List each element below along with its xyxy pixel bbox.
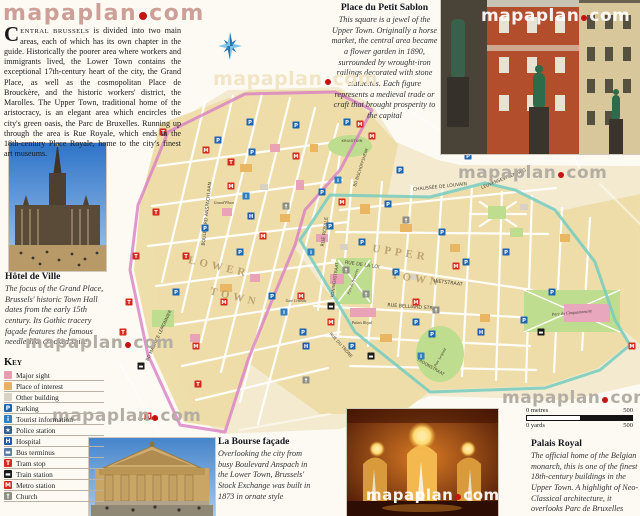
map-marker-glyph: T	[184, 254, 188, 260]
map-marker-glyph: ▬	[329, 304, 334, 310]
watermark: mapaplancom	[481, 6, 630, 26]
place-label: Grand'Place	[214, 200, 235, 205]
legend-label: Tram stop	[16, 459, 46, 468]
place-label: Gare Centrale	[286, 299, 307, 303]
map-marker-glyph: M	[298, 294, 303, 300]
compass-rose-icon	[218, 32, 242, 60]
legend-label: Bus terminus	[16, 448, 55, 457]
map-marker-glyph: ▬	[369, 354, 374, 360]
legend-label: Tourist information	[16, 415, 73, 424]
map-marker-glyph: P	[464, 260, 468, 266]
scale-metres-max: 500	[623, 407, 633, 414]
map-marker-glyph: P	[386, 202, 390, 208]
legend-icon: T	[4, 459, 12, 467]
legend-icon	[4, 393, 12, 401]
la-bourse-body: Overlooking the city from busy Boulevard…	[218, 449, 314, 502]
map-key: Key Major sightPlace of interestOther bu…	[4, 357, 104, 502]
key-item: HHospital	[4, 436, 104, 447]
logo-tld: com	[149, 1, 205, 26]
map-marker-glyph: P	[294, 123, 298, 129]
map-marker-glyph: i	[245, 194, 247, 200]
map-marker-glyph: P	[414, 320, 418, 326]
map-marker-glyph: T	[134, 254, 138, 260]
map-marker-glyph: M	[193, 344, 198, 350]
key-list: Major sightPlace of interestOther buildi…	[4, 370, 104, 502]
map-marker-glyph: P	[238, 250, 242, 256]
legend-label: Other building	[16, 393, 59, 402]
map-marker-glyph: i	[283, 310, 285, 316]
watermark: mapaplancom	[502, 388, 640, 408]
legend-label: Police station	[16, 426, 56, 435]
map-marker-glyph: P	[320, 190, 324, 196]
map-marker-glyph: P	[394, 270, 398, 276]
map-marker-glyph: i	[420, 354, 422, 360]
legend-icon: P	[4, 404, 12, 412]
legend-icon: ★	[4, 426, 12, 434]
legend-icon: i	[4, 415, 12, 423]
legend-icon	[4, 371, 12, 379]
map-marker-glyph: P	[522, 318, 526, 324]
watermark: mapaplancom	[458, 163, 607, 183]
map-marker-glyph: M	[357, 122, 362, 128]
map-marker-glyph: H	[304, 344, 308, 350]
map-marker-glyph: M	[293, 154, 298, 160]
legend-label: Train station	[16, 470, 53, 479]
map-marker-glyph: P	[248, 120, 252, 126]
map-marker-glyph: P	[504, 250, 508, 256]
photo-hotel-de-ville	[8, 142, 107, 272]
hotel-de-ville-title: Hôtel de Ville	[5, 271, 107, 282]
site-logo: mapaplancom	[3, 1, 205, 26]
map-marker-glyph: †	[405, 218, 408, 224]
map-marker-glyph: †	[305, 378, 308, 384]
street-label: KRUIDTUIN	[341, 138, 362, 143]
map-marker-glyph: T	[196, 382, 200, 388]
map-marker-glyph: M	[260, 234, 265, 240]
scale-bar	[526, 415, 633, 421]
legend-label: Major sight	[16, 371, 50, 380]
map-marker-glyph: P	[328, 224, 332, 230]
watermark: mapaplancom	[25, 333, 174, 353]
map-scale: 0 metres 500 0 yards 500	[526, 407, 633, 429]
map-marker-glyph: P	[301, 330, 305, 336]
legend-label: Hospital	[16, 437, 41, 446]
legend-icon: ▬	[4, 448, 12, 456]
map-marker-glyph: M	[328, 320, 333, 326]
legend-icon	[4, 382, 12, 390]
palais-royal-title: Palais Royal	[531, 438, 639, 449]
watermark-dot-icon	[581, 15, 587, 21]
map-marker-glyph: M	[369, 134, 374, 140]
map-marker-glyph: M	[339, 200, 344, 206]
la-bourse-title: La Bourse façade	[218, 436, 314, 447]
watermark: mapaplancom	[213, 68, 378, 90]
intro-dropcap: C	[4, 26, 19, 43]
key-item: ▬Bus terminus	[4, 447, 104, 458]
watermark-dot-icon	[602, 397, 608, 403]
key-item: Other building	[4, 392, 104, 403]
scale-metres-zero: 0 metres	[526, 407, 548, 414]
scale-yards-max: 500	[623, 422, 633, 429]
map-marker-glyph: P	[250, 150, 254, 156]
intro-body: is divided into two main areas, each of …	[4, 26, 181, 158]
intro-lead: ENTRAL BRUSSELS	[20, 28, 89, 35]
article-la-bourse: La Bourse façade Overlooking the city fr…	[218, 436, 314, 502]
key-item: iTourist information	[4, 414, 104, 425]
legend-icon: †	[4, 492, 12, 500]
map-marker-glyph: M	[203, 148, 208, 154]
map-marker-glyph: ▬	[139, 364, 144, 370]
palais-royal-body: The official home of the Belgian monarch…	[531, 451, 639, 515]
watermark-dot-icon	[558, 172, 564, 178]
map-marker-glyph: †	[435, 308, 438, 314]
intro-text: CENTRAL BRUSSELS is divided into two mai…	[4, 26, 181, 160]
petit-sablon-title: Place du Petit Sablon	[331, 2, 438, 13]
map-marker-glyph: P	[398, 168, 402, 174]
watermark-dot-icon	[455, 494, 461, 500]
map-marker-glyph: M	[413, 300, 418, 306]
map-marker-glyph: P	[360, 240, 364, 246]
scale-yards-zero: 0 yards	[526, 422, 545, 429]
map-marker-glyph: T	[229, 160, 233, 166]
key-item: Major sight	[4, 370, 104, 381]
map-marker-glyph: P	[270, 294, 274, 300]
map-marker-glyph: i	[310, 250, 312, 256]
map-marker-glyph: P	[216, 138, 220, 144]
map-marker-glyph: T	[127, 300, 131, 306]
watermark-dot-icon	[152, 415, 158, 421]
map-marker-glyph: H	[479, 330, 483, 336]
article-petit-sablon: Place du Petit Sablon This square is a j…	[331, 2, 438, 122]
map-marker-glyph: P	[430, 332, 434, 338]
legend-label: Place of interest	[16, 382, 63, 391]
map-marker-glyph: T	[154, 210, 158, 216]
key-item: Place of interest	[4, 381, 104, 392]
map-marker-glyph: ▬	[539, 330, 544, 336]
legend-icon: ▬	[4, 470, 12, 478]
map-marker-glyph: P	[440, 230, 444, 236]
legend-label: Church	[16, 492, 37, 501]
map-marker-glyph: †	[285, 204, 288, 210]
map-marker-glyph: P	[350, 344, 354, 350]
article-palais-royal: Palais Royal The official home of the Be…	[531, 438, 639, 515]
map-marker-glyph: †	[365, 292, 368, 298]
key-item: PParking	[4, 403, 104, 414]
map-marker-glyph: M	[228, 184, 233, 190]
guide-page: mapaplancom CENTRAL BRUSSELS is divided …	[0, 0, 640, 516]
watermark-dot-icon	[125, 342, 131, 348]
map-marker-glyph: P	[203, 226, 207, 232]
legend-icon: H	[4, 437, 12, 445]
place-label: Palais Royal	[351, 320, 373, 325]
watermark-dot-icon	[325, 79, 331, 85]
map-marker-glyph: P	[174, 290, 178, 296]
logo-dot-icon	[139, 12, 147, 20]
map-marker-glyph: i	[337, 178, 339, 184]
watermark: mapaplancom	[366, 486, 500, 504]
legend-label: Parking	[16, 404, 39, 413]
map-marker-glyph: †	[345, 268, 348, 274]
map-marker-glyph: M	[221, 300, 226, 306]
legend-icon: M	[4, 481, 12, 489]
map-marker-glyph: H	[249, 214, 253, 220]
legend-label: Metro station	[16, 481, 55, 490]
key-item: †Church	[4, 491, 104, 502]
key-item: ▬Train station	[4, 469, 104, 480]
map-marker-glyph: P	[550, 290, 554, 296]
key-item: TTram stop	[4, 458, 104, 469]
map-marker-glyph: M	[453, 264, 458, 270]
key-title: Key	[4, 357, 104, 368]
key-item: ★Police station	[4, 425, 104, 436]
map-marker-glyph: M	[629, 344, 634, 350]
key-item: MMetro station	[4, 480, 104, 491]
photo-la-bourse	[88, 437, 216, 516]
logo-name: mapaplan	[3, 1, 137, 26]
